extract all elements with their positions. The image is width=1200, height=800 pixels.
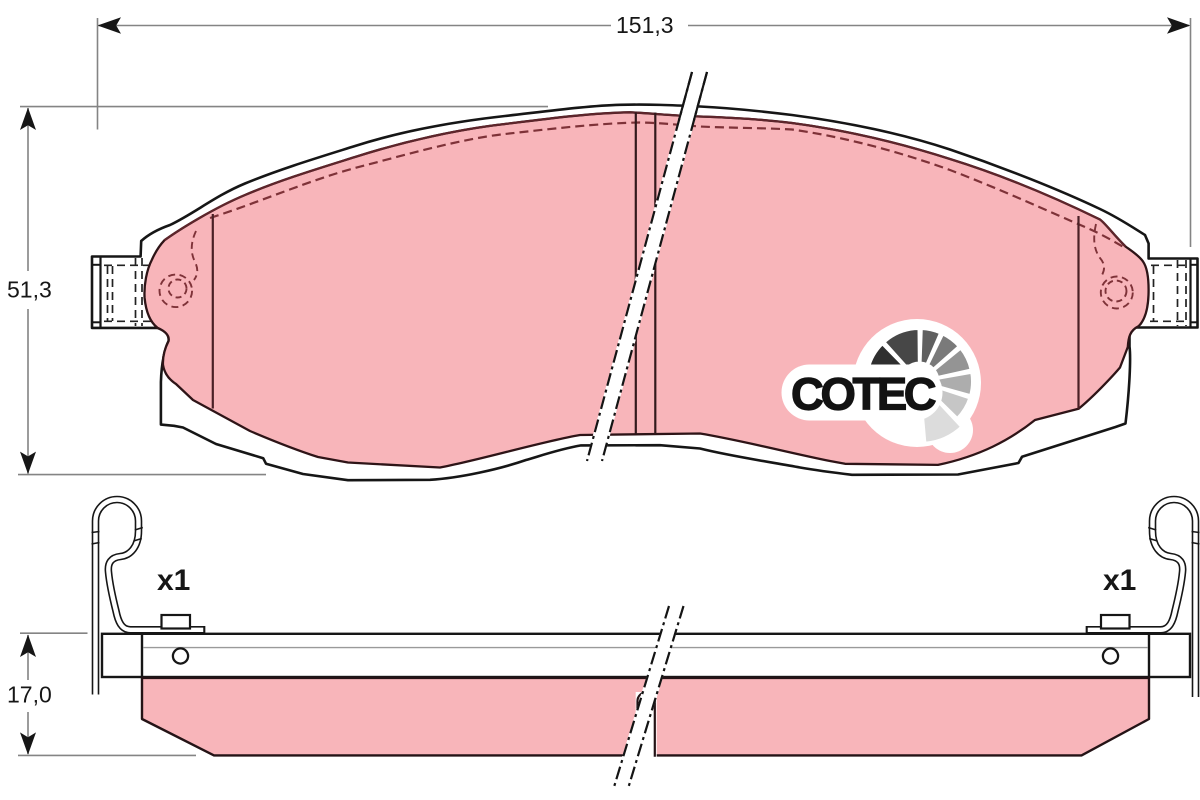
svg-text:x1: x1 bbox=[1103, 564, 1136, 597]
svg-text:x1: x1 bbox=[157, 564, 190, 597]
svg-text:51,3: 51,3 bbox=[7, 277, 52, 303]
svg-text:151,3: 151,3 bbox=[616, 12, 674, 38]
svg-text:COTEC: COTEC bbox=[791, 369, 936, 420]
svg-text:17,0: 17,0 bbox=[7, 682, 52, 708]
